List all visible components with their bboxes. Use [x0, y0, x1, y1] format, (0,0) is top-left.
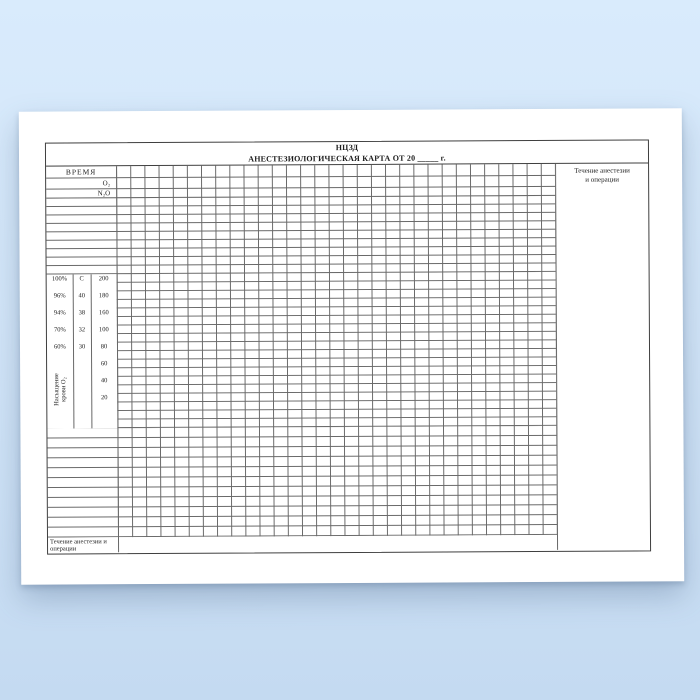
scale-grid-rows — [117, 272, 557, 428]
temperature-tick: 38 — [73, 308, 91, 317]
saturation-tick: 96% — [47, 291, 73, 300]
pulse-tick: 60 — [91, 359, 117, 368]
pulse-tick: 40 — [91, 376, 117, 385]
bottom-section-label-line2: операции — [50, 546, 116, 554]
pulse-tick: 180 — [91, 291, 117, 300]
saturation-tick: 70% — [47, 325, 73, 334]
course-column-title-line1: Течение анестезии — [556, 166, 648, 176]
temperature-tick: 40 — [73, 291, 91, 300]
anesthesia-chart-table: НЦЗД АНЕСТЕЗИОЛОГИЧЕСКАЯ КАРТА ОТ 20 ___… — [45, 139, 651, 554]
pulse-tick: 160 — [91, 308, 117, 317]
temperature-tick: 32 — [73, 325, 91, 334]
chart-body: ВРЕМЯ О₂ N₂O 100% 96% 94% 70% 60% — [46, 163, 650, 552]
pulse-tick: 200 — [91, 274, 117, 283]
blank-rows-upper — [46, 196, 555, 275]
bottom-row: Течение анестезии и операции — [48, 535, 557, 553]
n2o-label: N₂O — [46, 189, 116, 197]
temperature-tick: С — [73, 274, 91, 283]
saturation-axis-label-line2: крови О₂ — [60, 350, 68, 428]
scale-legend: 100% 96% 94% 70% 60% С 40 38 32 30 200 1… — [47, 274, 118, 428]
time-label: ВРЕМЯ — [46, 166, 116, 177]
pulse-tick: 20 — [91, 393, 117, 402]
bottom-section-label: Течение анестезии и операции — [48, 537, 118, 552]
pulse-tick: 100 — [91, 325, 117, 334]
course-column-title-line2: и операции — [556, 176, 648, 186]
temperature-tick: 30 — [73, 342, 91, 351]
paper-sheet: НЦЗД АНЕСТЕЗИОЛОГИЧЕСКАЯ КАРТА ОТ 20 ___… — [19, 108, 684, 584]
saturation-tick: 94% — [47, 308, 73, 317]
bottom-section-label-line1: Течение анестезии и — [50, 538, 116, 546]
saturation-tick: 100% — [47, 274, 73, 283]
course-column: Течение анестезии и операции — [555, 163, 650, 549]
blank-rows-lower — [47, 426, 557, 538]
saturation-axis-label: Насыщение крови О₂ — [53, 350, 69, 428]
pulse-tick: 80 — [91, 342, 117, 351]
form-header: НЦЗД АНЕСТЕЗИОЛОГИЧЕСКАЯ КАРТА ОТ 20 ___… — [46, 140, 648, 166]
o2-label: О₂ — [46, 178, 116, 188]
background: НЦЗД АНЕСТЕЗИОЛОГИЧЕСКАЯ КАРТА ОТ 20 ___… — [0, 0, 700, 700]
